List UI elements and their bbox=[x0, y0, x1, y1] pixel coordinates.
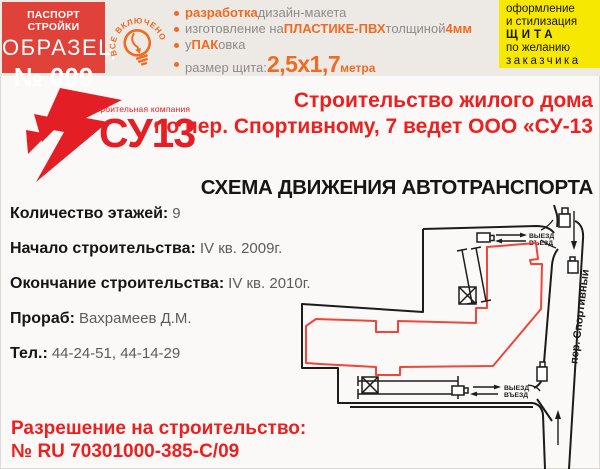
feature-item: разработка дизайн-макета bbox=[174, 5, 504, 21]
passport-box: ПАСПОРТ СТРОЙКИ ОБРАЗЕЦ № 009 bbox=[2, 2, 105, 73]
traffic-scheme-map: ВЫЕЗД ВЪЕЗД ВЫЕЗД ВЪЕЗД пер. Спортивный bbox=[290, 205, 600, 469]
feature-item: размер щита: 2,5х1,7 метра bbox=[174, 53, 504, 76]
permit-block: Разрешение на строительство: № RU 703010… bbox=[11, 417, 306, 463]
bullet-icon bbox=[174, 11, 179, 16]
feature-text: изготовление на bbox=[185, 21, 284, 37]
all-inclusive-stamp: ВСЕ ВКЛЮЧЕНО bbox=[103, 1, 169, 76]
header-strip: ПАСПОРТ СТРОЙКИ ОБРАЗЕЦ № 009 ВСЕ ВКЛЮЧЕ… bbox=[0, 0, 600, 76]
site-boundary bbox=[302, 226, 554, 469]
detail-value: Вахрамеев Д.М. bbox=[79, 310, 192, 327]
crane-icon bbox=[457, 247, 491, 304]
feature-text: размер щита: bbox=[185, 60, 267, 76]
detail-value: 44-24-51, 44-14-29 bbox=[52, 345, 180, 362]
feature-text: дизайн-макета bbox=[258, 5, 347, 21]
details-list: Количество этажей:9Начало строительства:… bbox=[10, 205, 295, 380]
offer-line: по желанию bbox=[506, 42, 600, 55]
project-title-line2: по пер. Спортивному, 7 ведет ООО «СУ-13 bbox=[154, 114, 593, 140]
detail-label: Тел.: bbox=[10, 345, 48, 362]
feature-text: метра bbox=[340, 60, 375, 76]
crane-icon bbox=[358, 376, 458, 399]
bullet-icon bbox=[174, 43, 179, 48]
offer-box: оформлениеи стилизацияЩИТАпо желаниюзака… bbox=[499, 0, 600, 68]
permit-number: № RU 70301000-385-С/09 bbox=[11, 440, 306, 463]
detail-label: Начало строительства: bbox=[10, 240, 196, 257]
detail-label: Окончание строительства: bbox=[10, 275, 224, 292]
offer-line: и стилизация bbox=[506, 16, 600, 29]
detail-value: IV кв. 2009г. bbox=[200, 240, 282, 257]
bottom-gate: ВЫЕЗД ВЪЕЗД bbox=[470, 385, 529, 399]
svg-text:ВСЕ ВКЛЮЧЕНО: ВСЕ ВКЛЮЧЕНО bbox=[103, 9, 168, 58]
detail-label: Количество этажей: bbox=[10, 205, 168, 222]
sample-label: ОБРАЗЕЦ bbox=[2, 35, 105, 61]
project-title-line1: Строительство жилого дома bbox=[154, 88, 593, 114]
detail-row: Начало строительства:IV кв. 2009г. bbox=[10, 240, 295, 257]
detail-row: Количество этажей:9 bbox=[10, 205, 295, 222]
feature-text: овка bbox=[218, 37, 245, 53]
feature-text: ПЛАСТИКЕ-ПВХ bbox=[284, 21, 386, 37]
feature-item: изготовление на ПЛАСТИКЕ-ПВХ толщиной 4м… bbox=[174, 21, 504, 37]
feature-text: 2,5х1,7 bbox=[267, 53, 340, 75]
passport-type-label: ПАСПОРТ СТРОЙКИ bbox=[2, 9, 105, 33]
detail-row: Прораб:Вахрамеев Д.М. bbox=[10, 310, 295, 327]
bullet-icon bbox=[174, 62, 179, 67]
construction-passport-sign: { "header": { "passport_box": {"line1": … bbox=[0, 0, 600, 469]
detail-label: Прораб: bbox=[10, 310, 75, 327]
detail-row: Окончание строительства:IV кв. 2010г. bbox=[10, 275, 295, 292]
detail-value: 9 bbox=[172, 205, 180, 222]
street-label: пер. Спортивный bbox=[568, 269, 592, 365]
feature-list: разработка дизайн-макетаизготовление на … bbox=[174, 5, 504, 76]
offer-line: оформление bbox=[506, 3, 600, 16]
exit-label: ВЫЕЗД bbox=[529, 233, 554, 240]
permit-title: Разрешение на строительство: bbox=[11, 417, 306, 440]
exit-label: ВЫЕЗД bbox=[504, 385, 529, 392]
feature-text: 4мм bbox=[445, 21, 471, 37]
detail-row: Тел.:44-24-51, 44-14-29 bbox=[10, 345, 295, 362]
offer-line: заказчика bbox=[506, 55, 600, 68]
project-title: Строительство жилого дома по пер. Спорти… bbox=[154, 88, 593, 140]
bullet-icon bbox=[174, 27, 179, 32]
lightbulb-icon: ВСЕ ВКЛЮЧЕНО bbox=[103, 9, 169, 73]
feature-text: толщиной bbox=[386, 21, 446, 37]
feature-text: ПАК bbox=[192, 37, 219, 53]
feature-text: разработка bbox=[185, 5, 258, 21]
scheme-heading: СХЕМА ДВИЖЕНИЯ АВТОТРАНСПОРТА bbox=[201, 176, 593, 200]
offer-line: ЩИТА bbox=[506, 29, 600, 42]
enter-label: ВЪЕЗД bbox=[504, 392, 528, 399]
